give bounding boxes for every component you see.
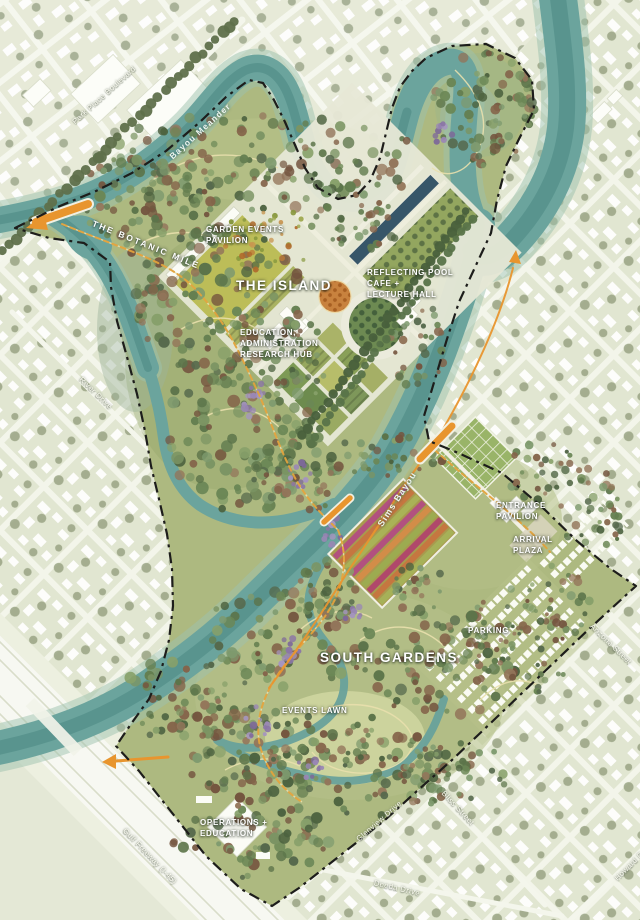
- plan-graphic: [0, 0, 640, 920]
- label-the-island: THE ISLAND: [236, 278, 332, 293]
- label-education-hub: EDUCATION, ADMINISTRATION RESEARCH HUB: [240, 327, 319, 360]
- label-reflecting-pool: REFLECTING POOL CAFE + LECTURE HALL: [367, 267, 454, 300]
- master-plan-map: Park Place Boulevard Bayou Meander THE B…: [0, 0, 640, 920]
- label-entrance-pavilion: ENTRANCE PAVILION: [496, 500, 546, 522]
- label-parking: PARKING: [468, 625, 509, 636]
- label-garden-events-pavilion: GARDEN EVENTS PAVILION: [206, 224, 284, 246]
- label-operations-education: OPERATIONS + EDUCATION: [200, 817, 268, 839]
- label-arrival-plaza: ARRIVAL PLAZA: [513, 534, 553, 556]
- label-events-lawn: EVENTS LAWN: [282, 705, 347, 716]
- label-south-gardens: SOUTH GARDENS: [320, 650, 458, 665]
